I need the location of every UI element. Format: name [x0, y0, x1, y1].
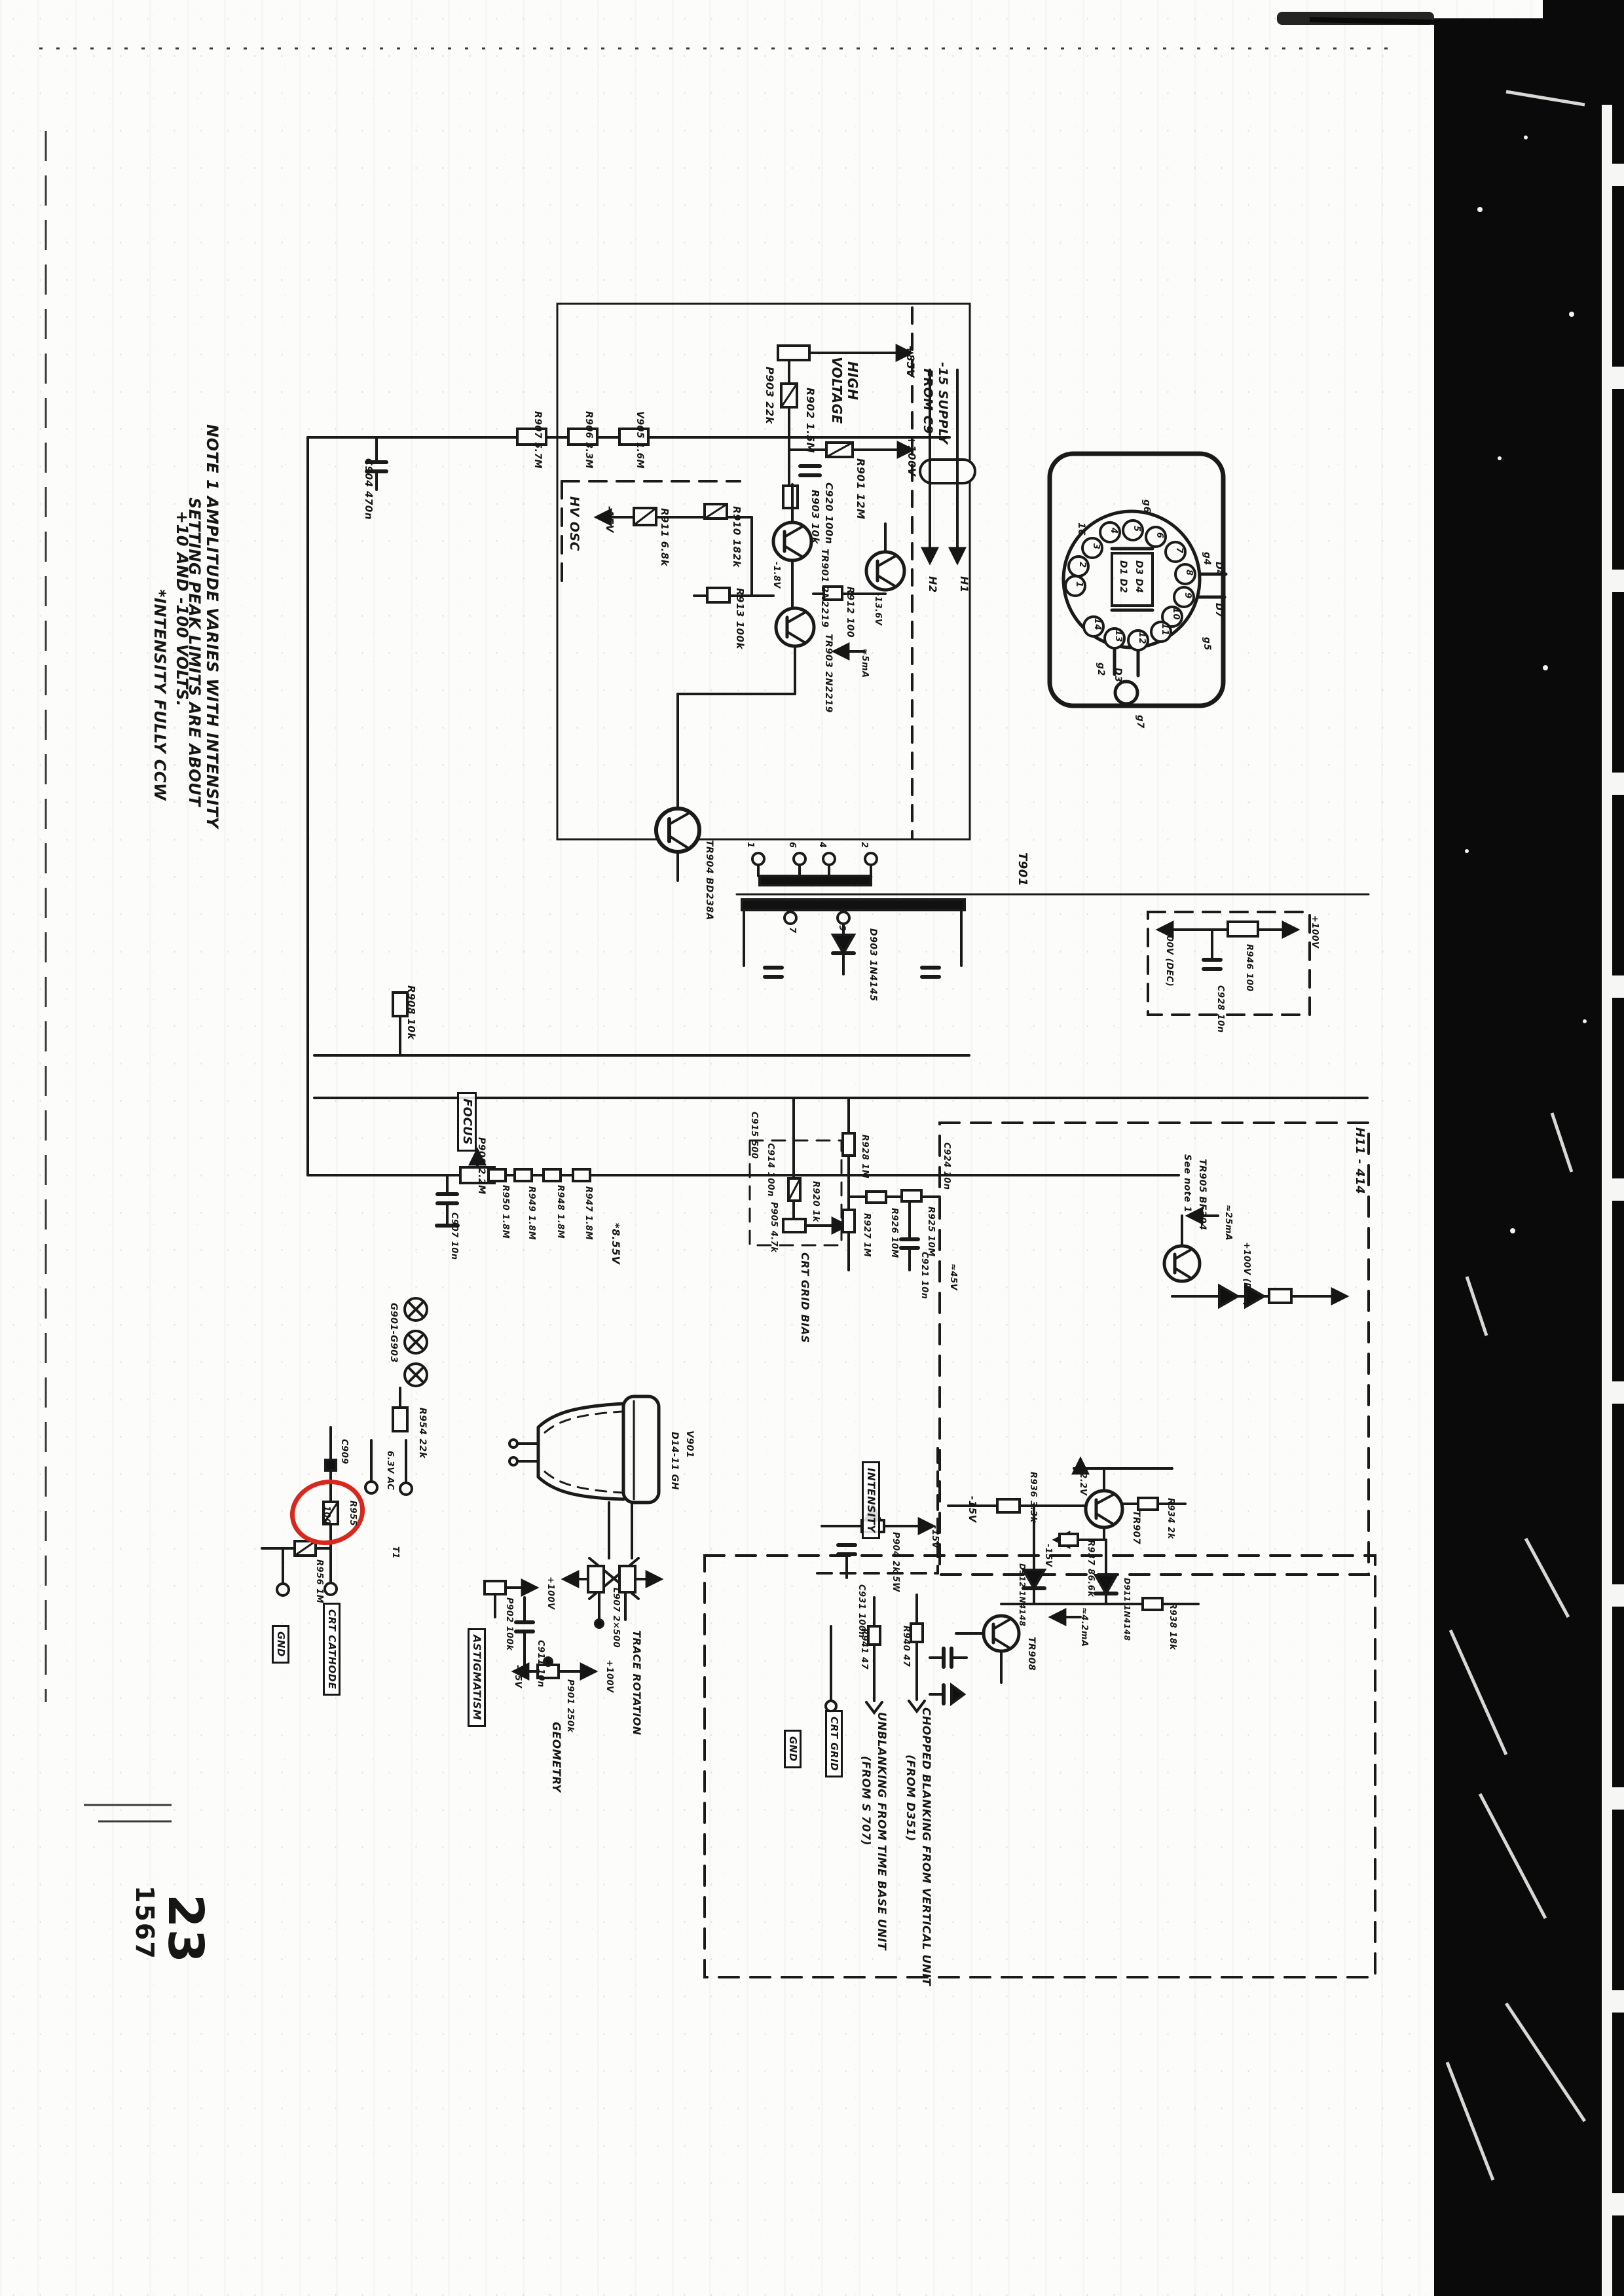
schematic-label: C928 10n — [1216, 985, 1225, 1033]
schematic-label: R954 22k — [418, 1408, 427, 1459]
schematic-label: *8.55V — [610, 1223, 621, 1264]
schematic-label: 1 — [1075, 581, 1083, 588]
schematic-label: D7 — [1214, 603, 1223, 617]
schematic-label: T1 — [391, 1546, 399, 1559]
schematic-label: +2.2V — [1079, 1465, 1087, 1495]
schematic-label: C915 500 — [750, 1112, 758, 1159]
schematic-label: R912 100 — [845, 587, 855, 638]
schematic-label: CRT GRID — [825, 1710, 843, 1777]
schematic-label: TR907 — [1132, 1510, 1141, 1544]
schematic-label: 16 — [1077, 522, 1086, 536]
schematic-label: g5 — [1202, 637, 1211, 651]
schematic-label: R903 10k — [810, 490, 820, 544]
schematic-label: 7 — [788, 927, 796, 934]
schematic-label: ASTIGMATISM — [468, 1628, 486, 1727]
schematic-label: +100V — [906, 436, 917, 477]
schematic-label: R955 — [348, 1501, 357, 1526]
schematic-label: ≈4.2mA — [1080, 1607, 1088, 1647]
schematic-label: TR908 — [1027, 1637, 1036, 1671]
schematic-label: R901 12M — [855, 458, 866, 519]
schematic-label: C921 10n — [920, 1252, 929, 1300]
schematic-label: +100V (DEC) — [1165, 922, 1173, 987]
schematic-label: C924 10n — [942, 1142, 951, 1190]
schematic-label: g7 — [1135, 715, 1145, 729]
schematic-label: H11 - 414 — [1354, 1127, 1365, 1194]
schematic-label: +100V — [605, 1660, 614, 1693]
schematic-label: FOCUS — [457, 1092, 477, 1152]
schematic-label: 14 — [1093, 618, 1101, 630]
schematic-label: C907 10n — [450, 1212, 458, 1260]
schematic-label: HV OSC — [568, 496, 580, 551]
schematic-label: 2 — [1078, 562, 1086, 568]
schematic-label: R934 2k — [1166, 1498, 1175, 1539]
schematic-label: g6 — [1142, 500, 1151, 513]
schematic-label: -15V — [967, 1496, 977, 1523]
scanned-schematic-page: NOTE 1 AMPLITUDE VARIES WITH INTENSITYSE… — [0, 0, 1624, 2296]
schematic-label: 13 — [1114, 630, 1122, 642]
schematic-label: R907 5.7M — [533, 411, 542, 469]
schematic-label: CHOPPED BLANKING FROM VERTICAL UNIT — [920, 1707, 931, 1986]
schematic-label: R956 1M — [315, 1559, 323, 1603]
schematic-label: +100V — [546, 1576, 555, 1610]
schematic-label: 6 — [1155, 532, 1164, 539]
schematic-label: +85V — [905, 345, 915, 378]
schematic-label: P908 2.2M — [477, 1137, 486, 1195]
schematic-label: 6 — [788, 842, 796, 848]
schematic-label: R925 10M — [927, 1207, 935, 1257]
schematic-label: R902 1.5M — [805, 388, 815, 453]
schematic-artwork — [0, 0, 1624, 2296]
schematic-label: R936 3.3k — [1029, 1472, 1037, 1523]
schematic-label: 1 — [746, 842, 754, 848]
schematic-label: P905 4.7k — [769, 1202, 778, 1252]
schematic-label: D1 D2 — [1118, 560, 1128, 593]
schematic-label: TR901 2N2219 — [820, 549, 829, 628]
schematic-label: 4 — [818, 842, 826, 848]
schematic-label: P904 2k 5W — [891, 1532, 900, 1592]
schematic-label: H1 — [959, 576, 969, 593]
schematic-label: P902 100k — [505, 1597, 513, 1650]
schematic-label: T901 — [1016, 852, 1028, 886]
schematic-label: R946 100 — [1245, 944, 1253, 992]
schematic-label: ≈25mA — [1224, 1205, 1232, 1241]
schematic-label: -13.6V — [874, 592, 882, 626]
schematic-label: VOLTAGE — [830, 357, 843, 424]
schematic-label: R949 1.8M — [527, 1186, 536, 1240]
schematic-label: R928 1M — [860, 1135, 869, 1178]
schematic-label: See note 1 — [1183, 1154, 1192, 1212]
schematic-label: FROM C9 — [921, 369, 934, 434]
schematic-label: R908 10k — [406, 985, 416, 1040]
schematic-label: P901 250k — [566, 1679, 574, 1732]
schematic-label: -15 SUPPLY — [936, 362, 949, 445]
schematic-label: UNBLANKING FROM TIME BASE UNIT — [876, 1712, 887, 1950]
schematic-label: G901-G903 — [389, 1303, 398, 1363]
schematic-label: g4 — [1202, 552, 1211, 566]
schematic-label: GND — [272, 1625, 289, 1664]
schematic-label: CRT GRID BIAS — [800, 1252, 810, 1343]
schematic-label: (FROM D351) — [904, 1755, 915, 1842]
schematic-label: R938 18k — [1168, 1603, 1177, 1650]
schematic-label: R948 1.8M — [556, 1185, 564, 1239]
schematic-label: D3 D4 — [1134, 560, 1143, 593]
schematic-label: D911 1N4148 — [1123, 1578, 1131, 1641]
page-stamp: 1567 — [132, 1886, 157, 1960]
schematic-label: 12 — [1137, 632, 1146, 644]
schematic-label: ≈5mA — [860, 648, 869, 678]
schematic-label: R910 182k — [731, 506, 741, 568]
schematic-label: R920 1k — [811, 1181, 820, 1222]
schematic-label: *INTENSITY FULLY CCW — [152, 589, 168, 801]
schematic-label: R937 86.6k — [1086, 1540, 1095, 1597]
schematic-label: GEOMETRY — [550, 1722, 561, 1793]
schematic-label: D912 1N4148 — [1018, 1563, 1026, 1626]
schematic-label: g2 — [1096, 663, 1105, 676]
schematic-label: V901 — [685, 1430, 694, 1458]
schematic-label: ≈45V — [949, 1264, 957, 1290]
schematic-label: R911 6.8k — [659, 508, 669, 566]
schematic-label: 2 — [860, 842, 868, 848]
schematic-label: C911 10n — [536, 1640, 545, 1688]
schematic-label: 10 — [1172, 608, 1180, 620]
schematic-label: R950 1.8M — [501, 1185, 509, 1239]
schematic-label: R927 1M — [862, 1213, 871, 1257]
page-number: 23 — [161, 1894, 210, 1964]
schematic-label: 4 — [1109, 528, 1118, 534]
schematic-label: +100V — [1310, 915, 1319, 949]
schematic-label: C920 100n — [824, 483, 834, 544]
schematic-label: TR904 BD238A — [705, 840, 714, 920]
schematic-label: C904 470n — [363, 458, 373, 520]
schematic-label: R940 47 — [902, 1626, 910, 1667]
schematic-label: D14-11 GH — [670, 1432, 679, 1490]
schematic-label: R926 10M — [890, 1208, 898, 1258]
schematic-label: C914 100n — [766, 1143, 775, 1197]
schematic-label: TR903 2N2219 — [824, 634, 833, 713]
schematic-label: -15V — [931, 1525, 939, 1549]
schematic-label: -15V — [513, 1665, 522, 1688]
schematic-label: C909 — [340, 1439, 348, 1465]
schematic-label: 3 — [1092, 543, 1100, 550]
schematic-label: +100V (DEC) — [1242, 1242, 1251, 1307]
schematic-label: +10 AND -100 VOLTS. — [174, 511, 190, 706]
schematic-label: HIGH — [846, 361, 859, 400]
schematic-label: D3 — [1113, 668, 1122, 682]
schematic-label: R941 47 — [860, 1628, 868, 1669]
schematic-label: 9 — [838, 925, 846, 932]
schematic-label: 11 — [1160, 623, 1169, 636]
schematic-label: TRACE ROTATION — [631, 1630, 642, 1736]
schematic-label: 100 — [322, 1506, 331, 1525]
schematic-label: 8 — [1185, 570, 1193, 576]
schematic-label: 5 — [1132, 526, 1141, 532]
schematic-label: NOTE 1 AMPLITUDE VARIES WITH INTENSITY — [204, 424, 220, 828]
schematic-label: R947 1.8M — [584, 1186, 593, 1240]
schematic-label: GND — [784, 1730, 802, 1768]
schematic-label: -15V — [604, 506, 614, 533]
schematic-label: TR905 BF304 — [1198, 1159, 1207, 1230]
schematic-label: 9 — [1183, 592, 1192, 599]
schematic-label: R913 100k — [735, 588, 745, 649]
schematic-label: R906 3.3M — [584, 411, 593, 469]
schematic-label: INTENSITY — [862, 1461, 880, 1539]
schematic-label: P903 22k — [764, 367, 775, 424]
schematic-label: 6.3V AC — [386, 1451, 394, 1490]
schematic-label: (FROM S 707) — [860, 1756, 871, 1846]
schematic-label: D903 1N4145 — [868, 928, 877, 1002]
schematic-label: 7 — [1175, 547, 1183, 554]
schematic-label: -15V — [1044, 1544, 1052, 1567]
schematic-label: CRT CATHODE — [323, 1603, 341, 1696]
schematic-label: D4 — [1214, 562, 1223, 576]
schematic-label: V905 1.6M — [635, 411, 644, 469]
schematic-label: H2 — [927, 576, 938, 593]
schematic-label: L907 2×500 — [612, 1588, 620, 1648]
schematic-label: -1.8V — [772, 562, 781, 589]
